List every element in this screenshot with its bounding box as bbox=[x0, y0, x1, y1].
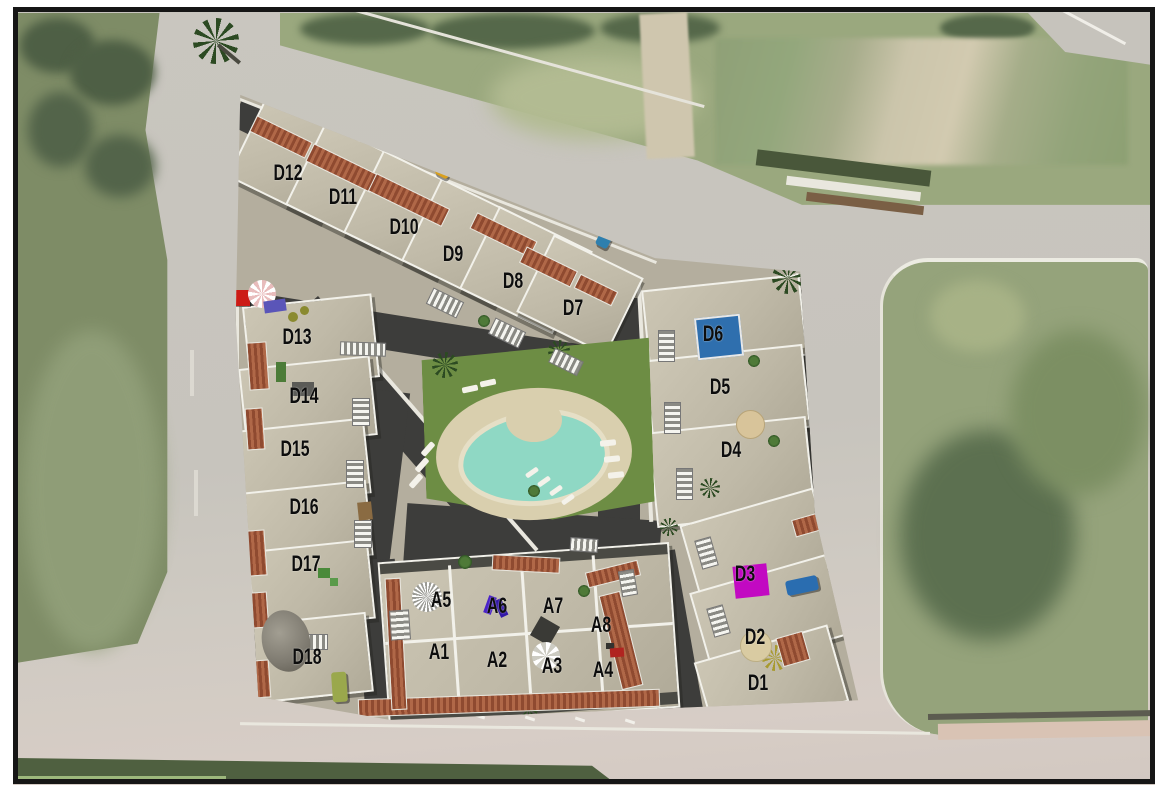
white-parasol bbox=[532, 642, 560, 670]
stairs bbox=[426, 287, 464, 318]
boundary-wall-west bbox=[236, 295, 239, 695]
stairs bbox=[664, 402, 681, 434]
tiled-roof bbox=[246, 341, 269, 390]
stairs bbox=[352, 398, 370, 426]
magenta-terrace-d3 bbox=[732, 563, 769, 598]
stairs bbox=[570, 537, 599, 553]
stairs bbox=[340, 341, 386, 357]
lane-dash bbox=[190, 350, 194, 396]
lane-dash bbox=[194, 470, 198, 516]
parking-tick bbox=[575, 717, 585, 723]
parking-tick bbox=[525, 716, 535, 722]
wood-table-set bbox=[357, 501, 373, 520]
private-pool-d6 bbox=[694, 314, 744, 361]
palm-tree bbox=[772, 262, 804, 294]
sun-lounger bbox=[408, 473, 423, 489]
tiled-roof bbox=[246, 529, 267, 576]
parking-tick bbox=[625, 719, 635, 725]
yellow-car bbox=[434, 148, 460, 179]
olive-table bbox=[300, 306, 309, 315]
grass-west bbox=[22, 330, 162, 650]
tiled-roof bbox=[245, 407, 266, 450]
stairs bbox=[658, 330, 675, 362]
pink-path bbox=[938, 720, 1152, 740]
spoke-parasol bbox=[412, 582, 442, 612]
shrub bbox=[748, 355, 760, 367]
shrub bbox=[478, 315, 490, 327]
stairs bbox=[346, 460, 364, 488]
beige-parasol bbox=[740, 630, 772, 662]
aerial-map: D1D2D3D4D5D6D7D8D9D10D11D12D13D14D15D16D… bbox=[0, 0, 1170, 785]
blurred-patch bbox=[715, 38, 1128, 165]
grass-east bbox=[1010, 330, 1145, 495]
stairs bbox=[354, 520, 372, 548]
gray-table bbox=[292, 382, 314, 396]
page-margin-top bbox=[0, 0, 1170, 7]
green-van bbox=[331, 672, 348, 703]
grass-east-light bbox=[930, 280, 1025, 352]
shrub bbox=[458, 555, 472, 569]
pool-notch bbox=[506, 398, 562, 442]
site-plan-screenshot: D1D2D3D4D5D6D7D8D9D10D11D12D13D14D15D16D… bbox=[0, 0, 1170, 785]
road-curb-bottom bbox=[240, 722, 930, 735]
planter bbox=[276, 362, 286, 382]
trees-north bbox=[430, 13, 595, 49]
green-furniture bbox=[330, 578, 338, 586]
stairs bbox=[389, 609, 411, 640]
trees-west bbox=[28, 92, 93, 167]
palm-tree bbox=[700, 478, 720, 498]
dirt-path-north bbox=[639, 12, 695, 159]
trees-north bbox=[300, 13, 430, 45]
shrub bbox=[768, 435, 780, 447]
page-margin-right bbox=[1155, 0, 1170, 785]
trees-west bbox=[85, 135, 155, 197]
shrub bbox=[528, 485, 540, 497]
red-table bbox=[610, 648, 625, 658]
palm-tree bbox=[660, 518, 678, 536]
tiled-roof bbox=[251, 659, 272, 698]
page-margin-left bbox=[0, 0, 13, 785]
tan-parasol bbox=[736, 410, 765, 439]
palm-tree bbox=[432, 352, 458, 378]
trees-west bbox=[70, 40, 155, 105]
stairs bbox=[676, 468, 693, 500]
green-furniture bbox=[318, 568, 330, 578]
olive-table bbox=[288, 312, 298, 322]
grass-south-light bbox=[16, 776, 226, 783]
